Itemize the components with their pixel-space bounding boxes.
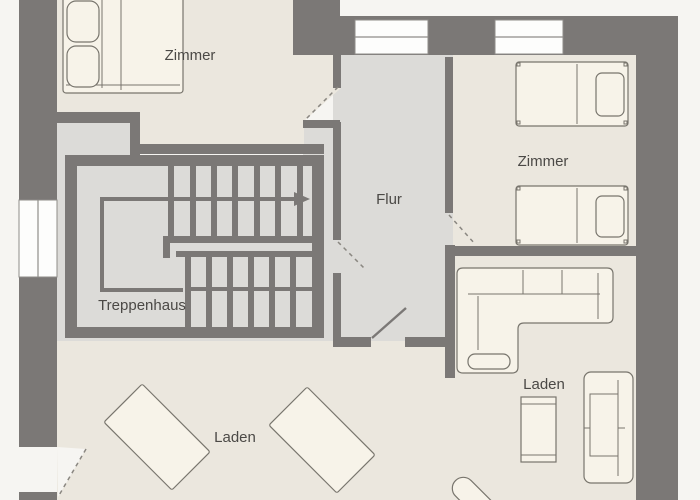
pillow xyxy=(67,1,99,42)
pillow xyxy=(67,46,99,87)
wall-flur-left-b xyxy=(333,122,341,240)
wall-flur-left-c xyxy=(333,273,341,338)
label-zimmer-right: Zimmer xyxy=(518,153,569,170)
sofa-right xyxy=(584,372,633,483)
window-top-zimmer-right xyxy=(495,20,563,54)
single-bed-bottom xyxy=(516,186,628,245)
wall-flur-right-b xyxy=(445,245,455,378)
wall-flur-left-a xyxy=(333,55,341,88)
wall-flur-bottom-left xyxy=(333,337,371,347)
floorplan-svg: Zimmer Zimmer Flur Treppenhaus Laden Lad… xyxy=(0,0,700,500)
wall-left-upper xyxy=(19,0,57,200)
wall-zimmer-tl-bottom xyxy=(133,144,324,154)
floorplan: Zimmer Zimmer Flur Treppenhaus Laden Lad… xyxy=(0,0,700,500)
sofa-cushion xyxy=(468,354,510,369)
single-bed-top xyxy=(516,62,628,126)
stair-wall-bottom xyxy=(65,327,324,338)
stair-wall-top xyxy=(65,155,324,166)
stair-landing-edge-side xyxy=(163,236,170,258)
wall-right xyxy=(636,16,678,500)
wall-top-pier xyxy=(293,0,340,55)
label-laden-right: Laden xyxy=(523,376,565,393)
wall-flur-bottom-right xyxy=(405,337,455,347)
wall-left-corner xyxy=(19,492,57,500)
wall-zimmer-tl-bottom-left xyxy=(57,112,140,123)
display-table-small xyxy=(521,397,556,462)
wall-flur-right-a xyxy=(445,57,453,213)
wall-zimmer-right-bottom xyxy=(445,246,636,256)
label-treppenhaus: Treppenhaus xyxy=(98,297,186,314)
wall-left-lower xyxy=(19,277,57,447)
pillow xyxy=(596,196,624,237)
window-left xyxy=(19,200,57,277)
label-flur: Flur xyxy=(376,191,402,208)
stair-wall-left xyxy=(65,155,77,338)
window-top-flur xyxy=(355,20,428,54)
stair-landing-edge-lower xyxy=(176,251,312,257)
label-zimmer-top-left: Zimmer xyxy=(165,47,216,64)
stair-wall-right xyxy=(312,155,324,338)
label-laden-main: Laden xyxy=(214,429,256,446)
pillow xyxy=(596,73,624,116)
stair-landing-edge-upper xyxy=(163,236,312,243)
